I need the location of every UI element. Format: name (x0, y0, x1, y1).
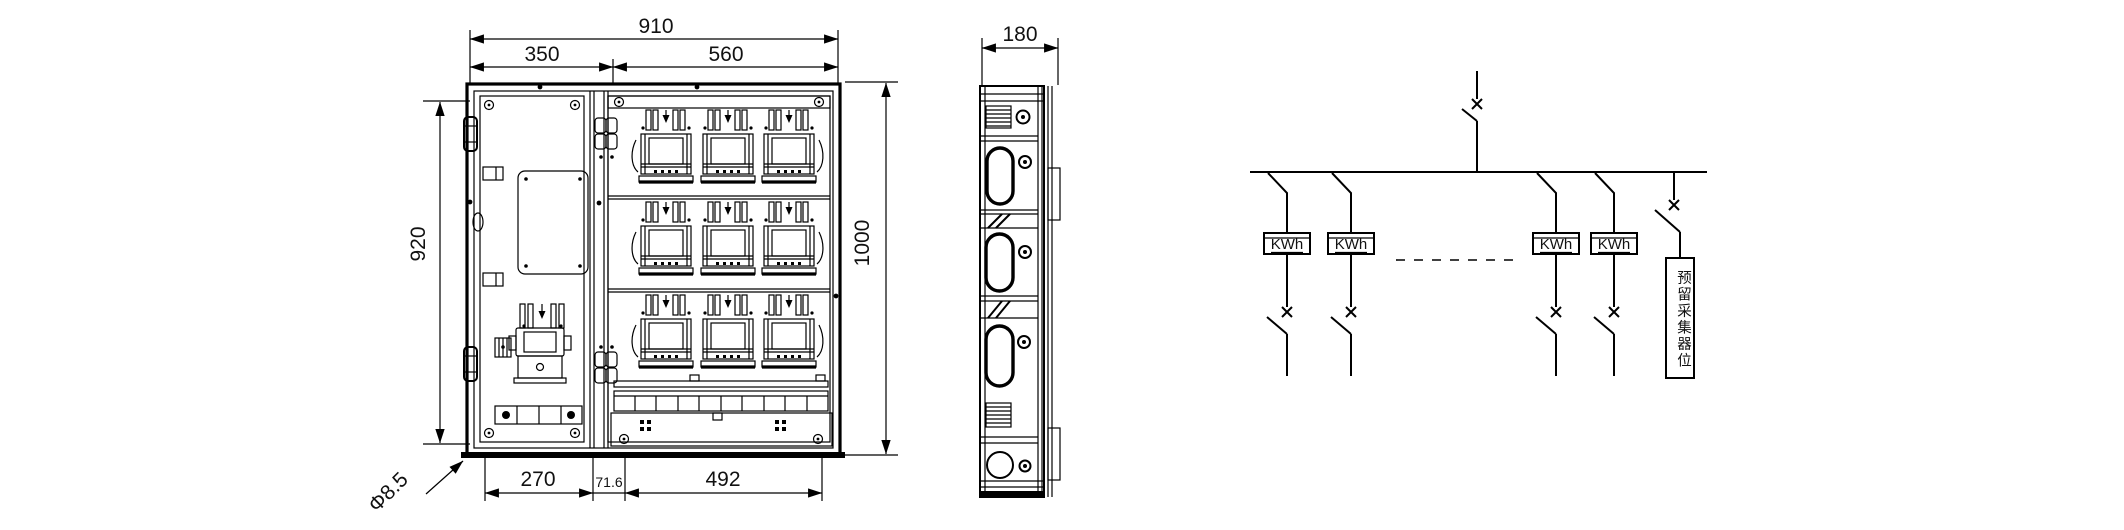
reserved-collector-label: 预留采集器位 (1668, 262, 1694, 376)
background (0, 0, 2124, 530)
engineering-drawing-canvas: 910 350 560 920 1000 270 71.6 492 Φ8.5 (0, 0, 2124, 530)
dim-bottom-right-label: 492 (705, 468, 740, 491)
dim-door-height-label: 920 (407, 226, 430, 261)
dim-bottom-mid-label: 71.6 (595, 474, 622, 490)
drawing-svg: 910 350 560 920 1000 270 71.6 492 Φ8.5 (0, 0, 2124, 530)
dim-total-height-label: 1000 (851, 220, 874, 267)
louver-vent-bottom (986, 403, 1011, 427)
dim-left-width-label: 350 (524, 43, 559, 66)
dim-total-width-label: 910 (638, 15, 673, 38)
kwh-label-3: KWh (1540, 236, 1573, 253)
cabinet-base (461, 452, 845, 458)
side-base (980, 491, 1044, 497)
dim-depth-label: 180 (1002, 23, 1037, 46)
dim-bottom-left-label: 270 (520, 468, 555, 491)
kwh-label-1: KWh (1271, 236, 1304, 253)
kwh-label-4: KWh (1598, 236, 1631, 253)
kwh-label-2: KWh (1335, 236, 1368, 253)
dim-right-width-label: 560 (708, 43, 743, 66)
